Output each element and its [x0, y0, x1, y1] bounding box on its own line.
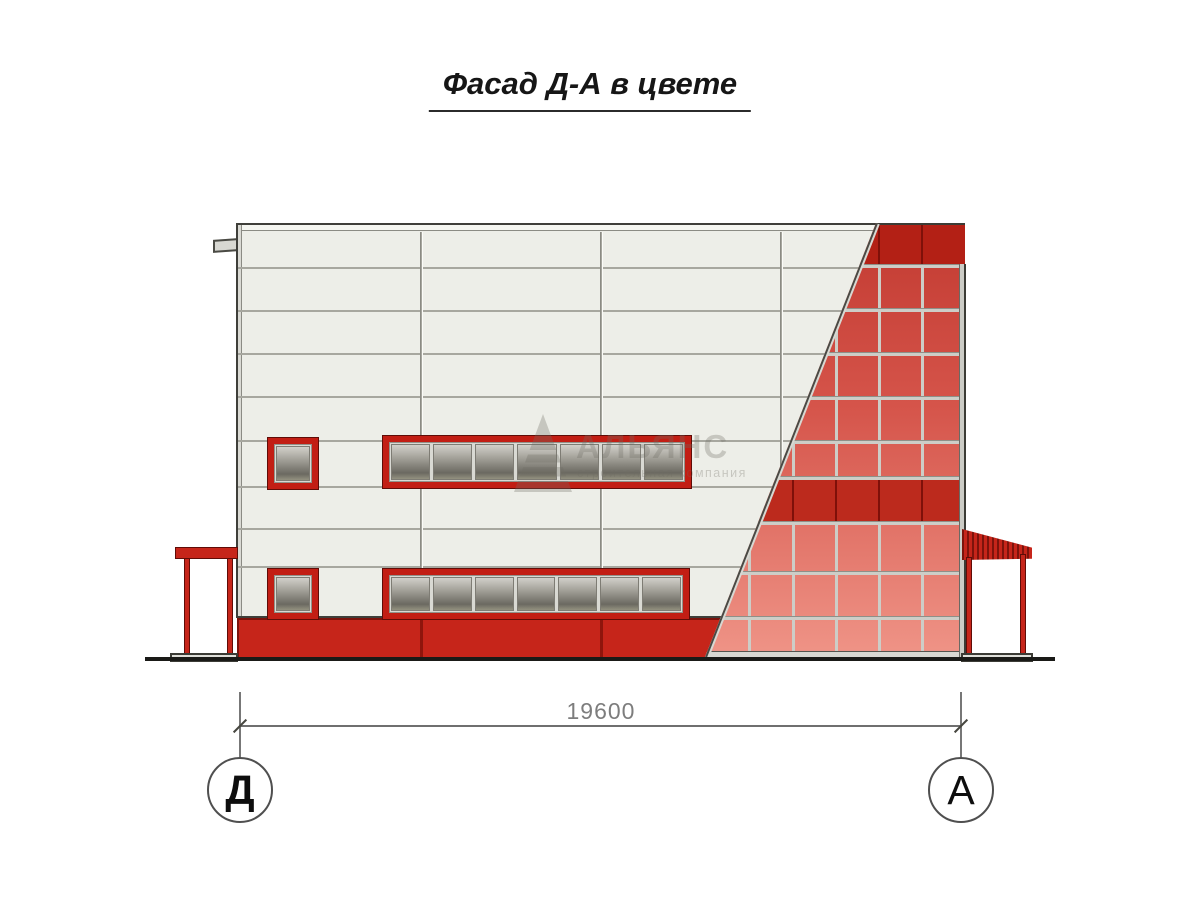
window-pane: [475, 577, 514, 611]
window-pane: [276, 446, 310, 481]
window-pane: [433, 577, 472, 611]
watermark-subtitle: строительная компания: [577, 466, 747, 480]
pyramid-logo-icon: [514, 414, 572, 492]
watermark: АЛЬЯНС строительная компания: [514, 410, 724, 494]
window-pane: [276, 577, 310, 611]
axis-label-left: Д: [225, 767, 254, 814]
window-pane: [391, 577, 430, 611]
window-small-upper: [267, 437, 319, 490]
wall-left-edge: [238, 225, 242, 616]
ground-line: [145, 657, 1055, 661]
glazing-mullion-vertical: [921, 223, 924, 651]
dimension-value: 19600: [540, 698, 662, 725]
plinth-joint: [420, 620, 423, 658]
window-pane: [391, 444, 430, 480]
parapet-band: [238, 225, 963, 231]
page-title: Фасад Д-А в цвете: [429, 64, 751, 112]
band-divider: [878, 223, 880, 265]
axis-bubble-right: А: [928, 757, 994, 823]
glazing-mullion-horizontal: [705, 572, 965, 575]
glazing-mullion-horizontal: [705, 617, 965, 620]
window-glass: [274, 575, 312, 613]
window-pane: [600, 577, 639, 611]
window-pane: [475, 444, 514, 480]
band-divider: [792, 477, 794, 522]
band-divider: [835, 477, 837, 522]
plinth-joint: [600, 620, 603, 658]
window-glass: [274, 444, 312, 483]
canopy-right-post: [1020, 554, 1026, 657]
band-divider: [921, 223, 923, 265]
watermark-name: АЛЬЯНС: [576, 428, 729, 466]
band-divider: [921, 477, 923, 522]
canopy-right-post: [966, 557, 972, 657]
window-pane: [517, 577, 556, 611]
window-pane: [642, 577, 681, 611]
panel-joint: [780, 232, 783, 472]
window-small-lower: [267, 568, 319, 620]
axis-bubble-left: Д: [207, 757, 273, 823]
scupper: [213, 238, 238, 253]
glazing-mullion-vertical: [878, 223, 881, 651]
canopy-left-post: [227, 558, 233, 656]
panel-joint: [420, 232, 423, 616]
band-divider: [878, 477, 880, 522]
window-pane: [558, 577, 597, 611]
window-ribbon-lower: [382, 568, 690, 620]
window-pane: [433, 444, 472, 480]
canopy-left-post: [184, 558, 190, 656]
corner-trim: [959, 264, 966, 657]
dimension-line: [239, 725, 962, 727]
window-glass: [389, 575, 683, 613]
axis-label-right: А: [947, 767, 974, 814]
